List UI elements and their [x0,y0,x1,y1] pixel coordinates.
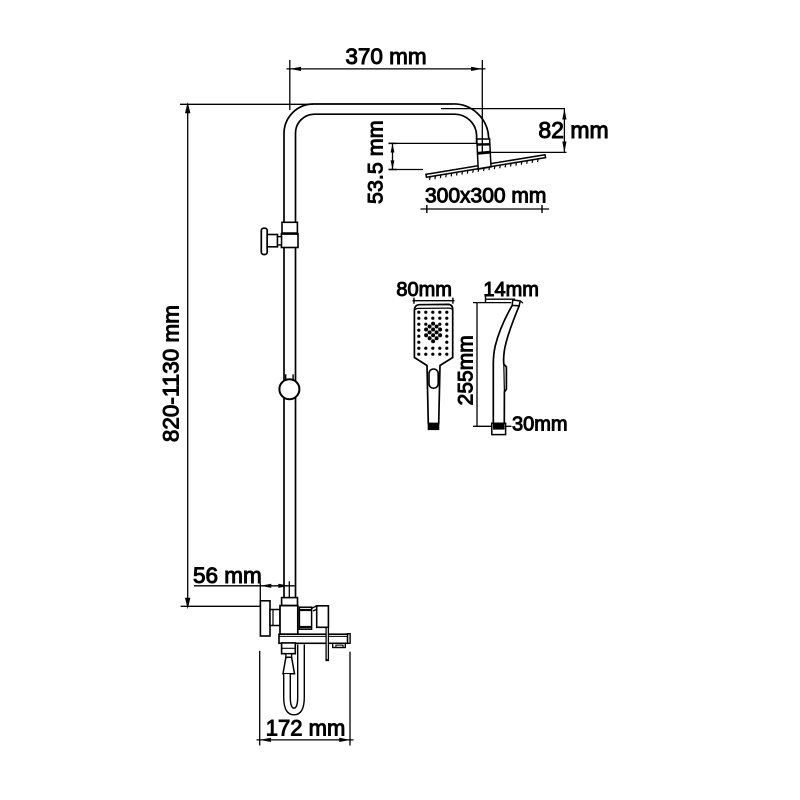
svg-text:53.5 mm: 53.5 mm [364,120,388,204]
svg-text:172 mm: 172 mm [266,716,345,741]
svg-text:820-1130 mm: 820-1130 mm [158,305,183,442]
svg-text:255mm: 255mm [455,335,478,405]
svg-text:30mm: 30mm [512,414,568,436]
svg-text:300x300 mm: 300x300 mm [425,185,546,208]
svg-text:14mm: 14mm [483,279,539,301]
svg-text:80mm: 80mm [396,279,452,301]
svg-text:370 mm: 370 mm [345,44,426,69]
svg-text:56 mm: 56 mm [193,563,262,588]
svg-text:82 mm: 82 mm [538,117,608,143]
